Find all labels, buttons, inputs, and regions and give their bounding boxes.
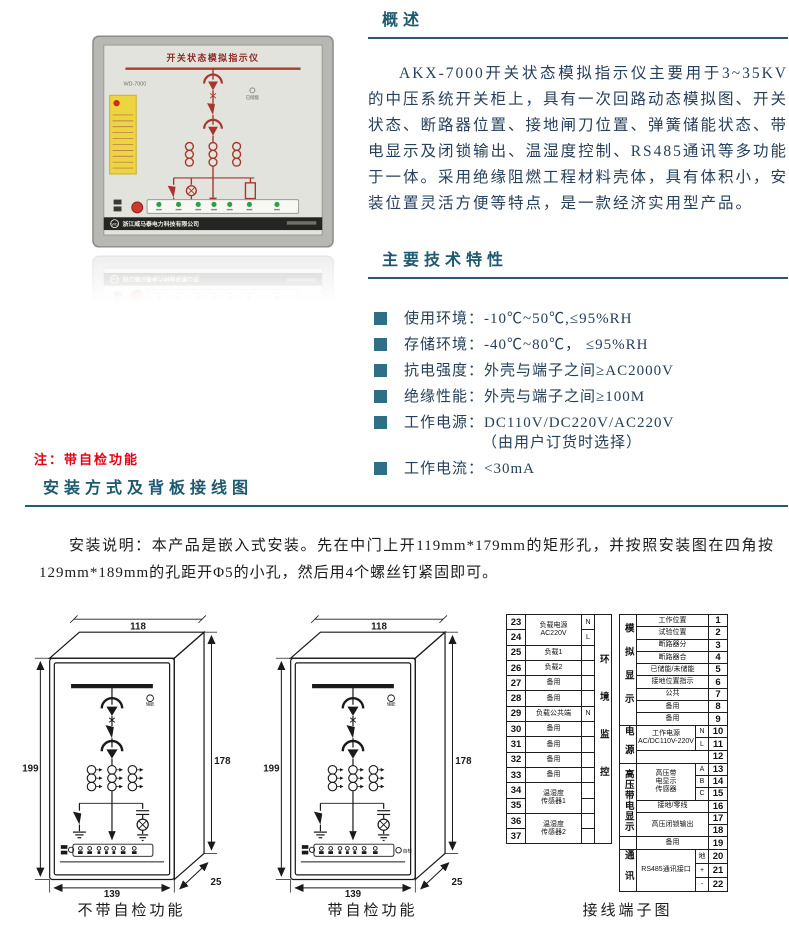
t-no: 1 — [709, 615, 728, 627]
list-item: 使用环境：-10℃~50℃,≤95%RH — [368, 309, 788, 329]
t-no: 12 — [709, 750, 728, 763]
table-row: 断路器合4 — [620, 651, 728, 663]
selfcheck-indicator: 自检 — [396, 847, 413, 854]
feature-text: 使用环境：-10℃~50℃,≤95%RH — [404, 309, 632, 329]
t-group — [620, 837, 637, 849]
t-label: RS485通讯接口 — [637, 849, 696, 891]
features-list: 使用环境：-10℃~50℃,≤95%RH 存储环境：-40℃~80℃， ≤95%… — [368, 309, 788, 479]
table-row: 备用9 — [620, 713, 728, 725]
t-no: 17 — [709, 812, 728, 824]
t-sub — [582, 783, 595, 798]
t-label: 负载2 — [526, 660, 582, 675]
t-no: 18 — [709, 825, 728, 837]
t-label: 负载1 — [526, 645, 582, 660]
table-row: 接地位置指示6 — [620, 676, 728, 688]
t-no: 7 — [709, 688, 728, 700]
table-row: 备用8 — [620, 701, 728, 713]
feature-text: 抗电强度：外壳与端子之间≥AC2000V — [404, 361, 674, 381]
t-sub: L — [582, 630, 595, 645]
t-label: 负载公共端 — [526, 706, 582, 721]
table-row: 高压带电显示高压带 电显示 传感器A13 — [620, 763, 728, 775]
t-no: 14 — [709, 775, 728, 787]
t-no: 21 — [709, 863, 728, 877]
t-sub — [582, 660, 595, 675]
install-heading: 安装方式及背板接线图 — [25, 474, 788, 507]
t-no: 34 — [507, 783, 526, 798]
t-no: 11 — [709, 738, 728, 751]
t-no: 33 — [507, 767, 526, 782]
t-no: 16 — [709, 800, 728, 812]
t-group: 电源 — [620, 725, 637, 763]
t-sub — [582, 722, 595, 737]
selfcheck-note: 注：带自检功能 — [34, 449, 139, 468]
t-label: 备用 — [526, 722, 582, 737]
features-section: 主要技术特性 使用环境：-10℃~50℃,≤95%RH 存储环境：-40℃~80… — [368, 246, 788, 485]
t-label: 工作位置 — [637, 615, 709, 627]
feature-text: 绝缘性能：外壳与端子之间≥100M — [404, 387, 645, 407]
overview-heading: 概述 — [368, 6, 788, 39]
t-label: 备用 — [637, 837, 709, 849]
bullet-square-icon — [374, 312, 387, 325]
t-label: 接地位置指示 — [637, 676, 709, 688]
t-no: 35 — [507, 798, 526, 813]
install-section: 安装方式及背板接线图 安装说明：本产品是嵌入式安装。先在中门上开119mm*17… — [25, 474, 788, 587]
page: 储能 118 — [0, 0, 789, 927]
t-label — [637, 750, 709, 763]
selfcheck-label: 自检 — [403, 848, 413, 855]
feature-text: 存储环境：-40℃~80℃， ≤95%RH — [404, 335, 648, 355]
t-no: 10 — [709, 725, 728, 738]
table-row: 已储能/未储能5 — [620, 664, 728, 676]
feature-text: 工作电源：DC110V/DC220V/AC220V（由用户订货时选择） — [404, 413, 674, 453]
list-item: 存储环境：-40℃~80℃， ≤95%RH — [368, 335, 788, 355]
t-no: 3 — [709, 639, 728, 651]
install-paragraph: 安装说明：本产品是嵌入式安装。先在中门上开119mm*179mm的矩形孔，并按照… — [39, 533, 774, 587]
t-no: 8 — [709, 701, 728, 713]
t-label: 备用 — [526, 676, 582, 691]
table-row: 断路器分3 — [620, 639, 728, 651]
t-sub — [582, 676, 595, 691]
t-no: 28 — [507, 691, 526, 706]
t-label: 断路器合 — [637, 651, 709, 663]
t-sub — [582, 645, 595, 660]
t-no: 22 — [709, 877, 728, 891]
overview-section: 概述 AKX-7000开关状态模拟指示仪主要用于3~35KV的中压系统开关柜上，… — [368, 6, 788, 217]
t-no: 6 — [709, 676, 728, 688]
t-sub: - — [696, 877, 709, 891]
t-no: 23 — [507, 615, 526, 630]
t-label: 试验位置 — [637, 627, 709, 639]
t-no: 9 — [709, 713, 728, 725]
overview-paragraph: AKX-7000开关状态模拟指示仪主要用于3~35KV的中压系统开关柜上，具有一… — [368, 61, 788, 217]
dimension-drawing-no-selfcheck — [14, 608, 249, 900]
t-sub: N — [582, 706, 595, 721]
table-row: 公共7 — [620, 688, 728, 700]
t-sub: L — [696, 738, 709, 751]
t-label: 高压带 电显示 传感器 — [637, 763, 696, 800]
t-no: 2 — [709, 627, 728, 639]
t-label: 备用 — [526, 691, 582, 706]
t-sub: N — [582, 615, 595, 630]
t-group: 环境监控 — [595, 615, 612, 844]
t-no: 26 — [507, 660, 526, 675]
terminal-table-right: 模拟显示工作位置1 试验位置2 断路器分3 断路器合4 已储能/未储能5 接地位… — [619, 614, 728, 892]
features-heading: 主要技术特性 — [368, 246, 788, 279]
table-row: 通讯RS485通讯接口地20 — [620, 849, 728, 863]
list-item: 抗电强度：外壳与端子之间≥AC2000V — [368, 361, 788, 381]
t-sub: N — [696, 725, 709, 738]
t-no: 24 — [507, 630, 526, 645]
table-row: 试验位置2 — [620, 627, 728, 639]
list-item: 绝缘性能：外壳与端子之间≥100M — [368, 387, 788, 407]
product-photo-reflection — [90, 252, 336, 310]
t-label: 已储能/未储能 — [637, 664, 709, 676]
bullet-square-icon — [374, 416, 387, 429]
t-label: 工作电源 AC/DC110V-220V — [637, 725, 696, 750]
t-label: 温湿度 传感器1 — [526, 783, 582, 814]
t-no: 37 — [507, 829, 526, 844]
drawing-caption: 不带自检功能 — [14, 899, 249, 920]
t-no: 20 — [709, 849, 728, 863]
t-no: 4 — [709, 651, 728, 663]
t-label: 备用 — [526, 737, 582, 752]
t-no: 29 — [507, 706, 526, 721]
t-no: 32 — [507, 752, 526, 767]
t-no: 15 — [709, 788, 728, 800]
t-sub: B — [696, 775, 709, 787]
table-row: 12 — [620, 750, 728, 763]
t-label: 断路器分 — [637, 639, 709, 651]
t-label: 备用 — [526, 752, 582, 767]
table-row: 电源工作电源 AC/DC110V-220VN10 — [620, 725, 728, 738]
t-no: 5 — [709, 664, 728, 676]
t-group: 通讯 — [620, 849, 637, 891]
t-sub: A — [696, 763, 709, 775]
t-sub: C — [696, 788, 709, 800]
t-label: 高压闭锁输出 — [637, 812, 709, 837]
t-sub — [582, 829, 595, 844]
dimension-drawing-selfcheck: 自检 — [255, 608, 490, 900]
t-group: 模拟显示 — [620, 615, 637, 726]
t-label: 备用 — [637, 701, 709, 713]
product-photo — [90, 34, 336, 256]
terminal-caption: 接线端子图 — [535, 899, 720, 920]
t-no: 30 — [507, 722, 526, 737]
t-sub — [582, 737, 595, 752]
t-label: 备用 — [526, 767, 582, 782]
table-row: 23负载电源 AC220VN环境监控 — [507, 615, 612, 630]
t-sub — [582, 767, 595, 782]
bullet-square-icon — [374, 364, 387, 377]
t-label: 公共 — [637, 688, 709, 700]
t-no: 19 — [709, 837, 728, 849]
t-label: 备用 — [637, 713, 709, 725]
list-item: 工作电源：DC110V/DC220V/AC220V（由用户订货时选择） — [368, 413, 788, 453]
t-no: 13 — [709, 763, 728, 775]
t-no: 36 — [507, 813, 526, 828]
t-sub — [582, 752, 595, 767]
table-row: 模拟显示工作位置1 — [620, 615, 728, 627]
t-no: 31 — [507, 737, 526, 752]
table-row: 接地/零线16 — [620, 800, 728, 812]
t-no: 27 — [507, 676, 526, 691]
t-sub: 地 — [696, 849, 709, 863]
drawing-caption: 带自检功能 — [255, 899, 490, 920]
t-label: 接地/零线 — [637, 800, 709, 812]
t-no: 25 — [507, 645, 526, 660]
t-sub — [582, 813, 595, 828]
t-sub: + — [696, 863, 709, 877]
t-sub — [582, 798, 595, 813]
t-label: 负载电源 AC220V — [526, 615, 582, 646]
table-row: 高压闭锁输出17 — [620, 812, 728, 824]
t-sub — [582, 691, 595, 706]
bullet-square-icon — [374, 390, 387, 403]
table-row: 备用19 — [620, 837, 728, 849]
bullet-square-icon — [374, 338, 387, 351]
t-label: 温湿度 传感器2 — [526, 813, 582, 844]
feature-subtext: （由用户订货时选择） — [482, 433, 674, 453]
terminal-table-left: 23负载电源 AC220VN环境监控 24L 25负载1 26负载2 27备用 … — [506, 614, 612, 844]
t-group: 高压带电显示 — [620, 763, 637, 837]
